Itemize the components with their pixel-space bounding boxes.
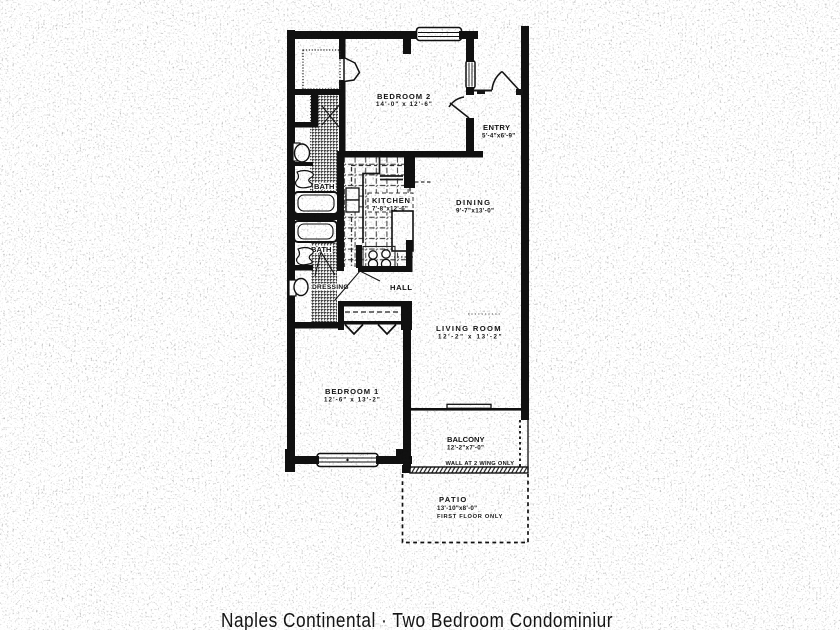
svg-text:Naples Continental · Two Bedro: Naples Continental · Two Bedroom Condomi… (221, 609, 613, 630)
